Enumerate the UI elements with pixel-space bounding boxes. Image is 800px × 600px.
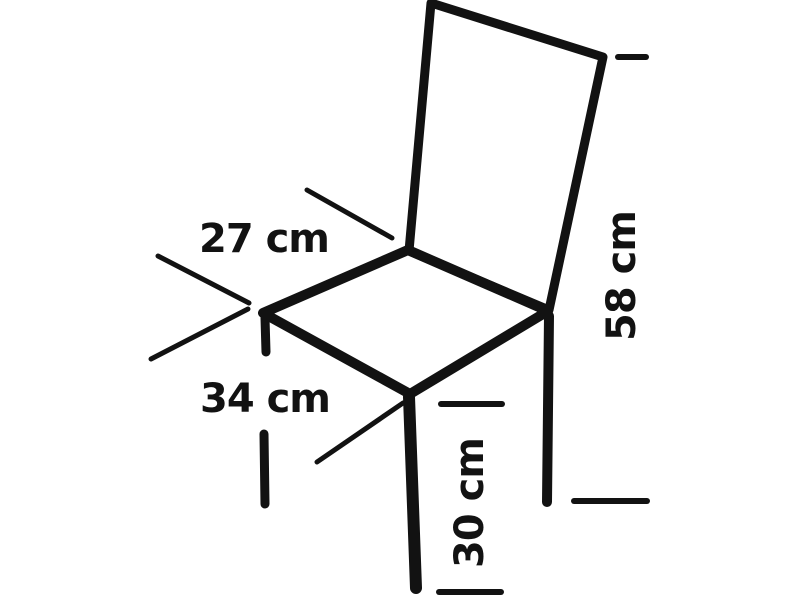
chair-back-leg [547, 316, 549, 502]
chair-seat [263, 250, 548, 394]
dim-label-27cm: 27 cm [199, 216, 329, 262]
diagram-canvas: 27 cm 34 cm 58 cm 30 cm [0, 0, 800, 600]
dim-27-ray-left [158, 256, 249, 303]
chair-hidden-leg-upper-dash [265, 318, 266, 352]
dim-34-ray-left [151, 309, 248, 359]
chair-hidden-leg-lower-dash [264, 434, 265, 504]
dim-label-34cm: 34 cm [200, 376, 330, 422]
dim-label-58cm: 58 cm [599, 211, 645, 341]
chair-dimensions-diagram: 27 cm 34 cm 58 cm 30 cm [0, 0, 800, 600]
dim-label-30cm: 30 cm [447, 438, 493, 568]
chair-front-leg [409, 397, 416, 588]
dimension-lines [151, 57, 647, 592]
chair-drawing [263, 3, 603, 588]
